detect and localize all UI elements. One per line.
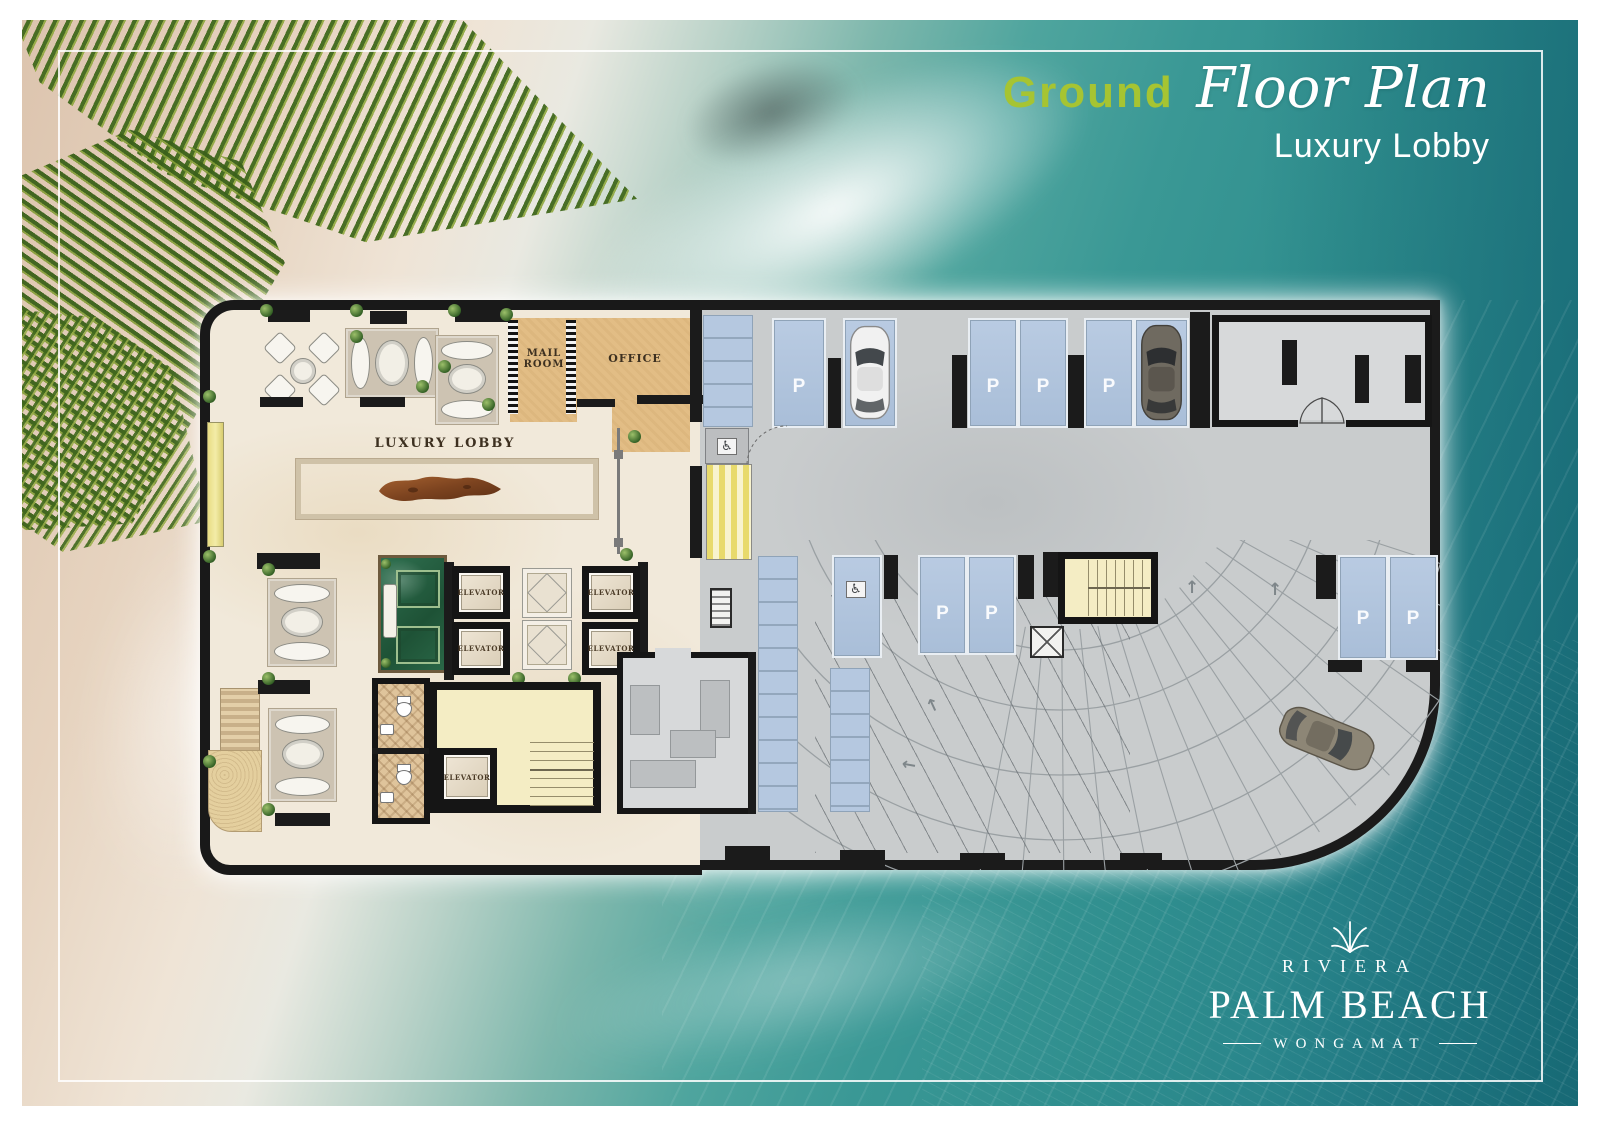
plant — [262, 672, 275, 685]
parking-spot: P — [967, 555, 1016, 655]
wall — [748, 652, 756, 814]
parking-spot: P — [918, 555, 967, 655]
elevator-label: ELEVATOR — [588, 588, 635, 597]
wall-pier — [268, 310, 310, 322]
title-accent: Ground — [1003, 68, 1174, 117]
wall-pier — [1068, 355, 1084, 428]
divider-wall — [690, 466, 702, 558]
sink — [380, 724, 394, 735]
wall-pier — [370, 311, 407, 324]
storage-lockers — [703, 315, 753, 427]
plant — [438, 360, 451, 373]
double-door — [1298, 390, 1346, 424]
beach-deck — [208, 750, 262, 832]
dash-ornament — [1223, 1043, 1261, 1044]
wall-pier — [275, 813, 330, 826]
page: Ground Floor Plan Luxury Lobby — [0, 0, 1600, 1132]
floor-medallion — [522, 568, 572, 618]
parking-spot: P — [1388, 555, 1438, 660]
sink — [380, 792, 394, 803]
corridor-wall — [617, 428, 620, 554]
column — [1405, 355, 1421, 403]
plant — [620, 548, 633, 561]
parking-spot: P — [1018, 318, 1068, 428]
accessible-entrance: ♿ — [705, 428, 749, 464]
plant — [260, 304, 273, 317]
brand-name: RIVIERA — [1180, 956, 1520, 977]
curved-sofa — [275, 777, 330, 796]
parking-p-label: P — [936, 603, 949, 625]
wall-pier — [1316, 555, 1336, 599]
office-label: OFFICE — [590, 352, 680, 365]
oval-table — [375, 340, 409, 386]
wall-pilaster — [614, 450, 623, 459]
counter — [630, 760, 696, 788]
toilet — [396, 764, 410, 784]
parking-spot: P — [968, 318, 1018, 428]
elevator: ELEVATOR — [452, 622, 510, 675]
brand-location: WONGAMAT — [1180, 1036, 1520, 1053]
column — [1282, 340, 1297, 385]
oval-table — [282, 739, 324, 769]
wall-pier — [260, 397, 303, 407]
elevator-label: ELEVATOR — [458, 588, 505, 597]
parking-p-label: P — [793, 376, 806, 398]
elevator: ELEVATOR — [582, 566, 640, 619]
lobby-label: LUXURY LOBBY — [350, 436, 540, 451]
plant — [203, 550, 216, 563]
restroom-divider-wall — [372, 748, 430, 754]
parking-p-label: P — [1103, 376, 1116, 398]
bench-ledge — [207, 422, 224, 547]
parking-p-label: P — [1357, 608, 1370, 630]
stair-rail — [530, 769, 594, 771]
plant — [203, 755, 216, 768]
lane-arrow: ↑ — [1185, 578, 1199, 598]
plant — [416, 380, 429, 393]
plant — [203, 390, 216, 403]
dash-ornament — [1439, 1043, 1477, 1044]
divider-wall — [690, 310, 702, 422]
pedestrian-ramp — [706, 464, 752, 560]
plant — [482, 398, 495, 411]
brand-logo: RIVIERA PALM BEACH WONGAMAT — [1180, 918, 1520, 1053]
round-table — [290, 358, 316, 384]
curved-sofa — [275, 715, 330, 734]
brand-location-text: WONGAMAT — [1273, 1036, 1426, 1052]
wall-pier — [1018, 555, 1034, 599]
counter — [670, 730, 716, 758]
garden-medallion — [396, 570, 440, 608]
palmette-icon — [1328, 918, 1372, 954]
parking-p-label: P — [1037, 376, 1050, 398]
plant — [350, 304, 363, 317]
brand-title: PALM BEACH — [1180, 981, 1520, 1028]
oval-table — [281, 607, 323, 637]
wall-pier — [828, 358, 841, 428]
curved-sofa — [351, 337, 370, 389]
lane-arrow: ↑ — [1268, 580, 1282, 600]
plant — [448, 304, 461, 317]
parking-p-label: P — [1407, 608, 1420, 630]
curved-sofa — [441, 341, 493, 360]
plant — [381, 559, 391, 569]
oval-table — [448, 364, 486, 394]
shaft — [710, 588, 732, 628]
mail-room-label: MAIL ROOM — [516, 348, 572, 370]
storage-lockers — [830, 668, 870, 812]
elevator-label: ELEVATOR — [444, 773, 491, 782]
garden-medallion — [396, 626, 440, 664]
floor-medallion — [522, 620, 572, 670]
door-gap — [655, 648, 691, 658]
elevator-label: ELEVATOR — [458, 644, 505, 653]
parking-spot: P — [772, 318, 826, 428]
title-script: Floor Plan — [1196, 56, 1490, 121]
wall-pier — [884, 555, 898, 599]
storage-lockers — [758, 556, 798, 812]
wall-pier — [360, 397, 405, 407]
wall-pier — [1043, 552, 1058, 597]
parking-spot: P — [1338, 555, 1388, 660]
wall — [1190, 312, 1210, 428]
gray-car — [1138, 322, 1185, 429]
title-subtitle: Luxury Lobby — [1003, 127, 1490, 166]
parking-p-label: P — [987, 376, 1000, 398]
column — [1355, 355, 1369, 403]
counter — [630, 685, 660, 735]
plant — [262, 563, 275, 576]
plant — [350, 330, 363, 343]
white-car — [847, 322, 893, 429]
entrance-door-swing — [745, 422, 795, 466]
wall — [577, 399, 615, 407]
page-title: Ground Floor Plan Luxury Lobby — [1003, 56, 1490, 166]
elevator: ELEVATOR — [452, 566, 510, 619]
driftwood-reception-desk — [375, 466, 505, 515]
floor-plan: MAIL ROOM OFFICE LUXURY LOBBY — [200, 300, 1440, 875]
plant — [381, 658, 391, 668]
parking-p-label: P — [985, 603, 998, 625]
shaft — [1030, 626, 1064, 658]
wheelchair-icon: ♿ — [846, 581, 866, 598]
office-annex — [612, 400, 690, 452]
stair-rail — [1088, 587, 1150, 589]
curved-sofa — [274, 642, 330, 661]
wall-pier — [952, 355, 967, 428]
wall-pilaster — [614, 538, 623, 547]
stairs — [530, 736, 594, 806]
beach-steps — [220, 688, 260, 752]
garden-bench — [383, 584, 397, 638]
curved-sofa — [274, 584, 330, 603]
elevator: ELEVATOR — [437, 748, 497, 806]
toilet — [396, 696, 410, 716]
parking-spot: P — [1084, 318, 1134, 428]
plant — [500, 308, 513, 321]
wheelchair-icon: ♿ — [717, 438, 737, 455]
plant — [262, 803, 275, 816]
plant — [628, 430, 641, 443]
accessible-parking-spot: ♿ — [832, 555, 882, 658]
